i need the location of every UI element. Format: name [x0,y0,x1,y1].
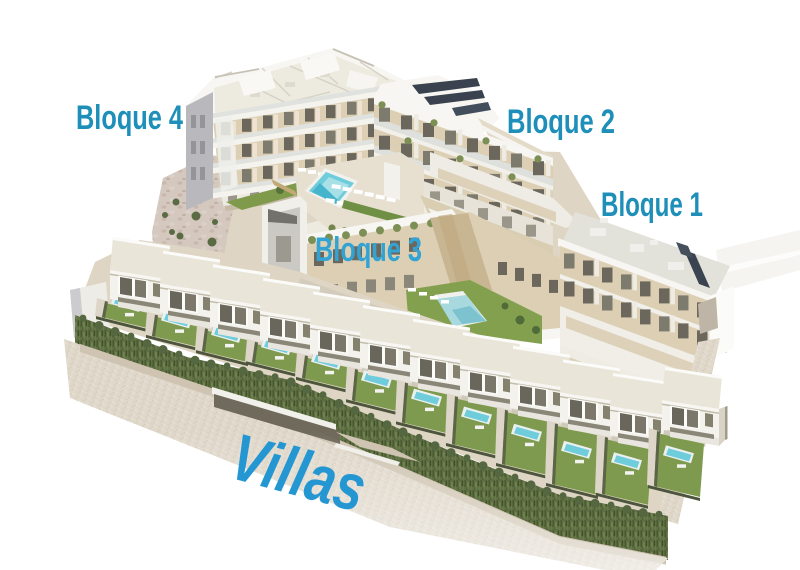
svg-text:Bloque 3: Bloque 3 [315,231,422,269]
svg-text:Bloque 1: Bloque 1 [601,186,703,224]
svg-text:Bloque 4: Bloque 4 [76,99,183,137]
svg-text:Bloque 2: Bloque 2 [507,103,615,141]
